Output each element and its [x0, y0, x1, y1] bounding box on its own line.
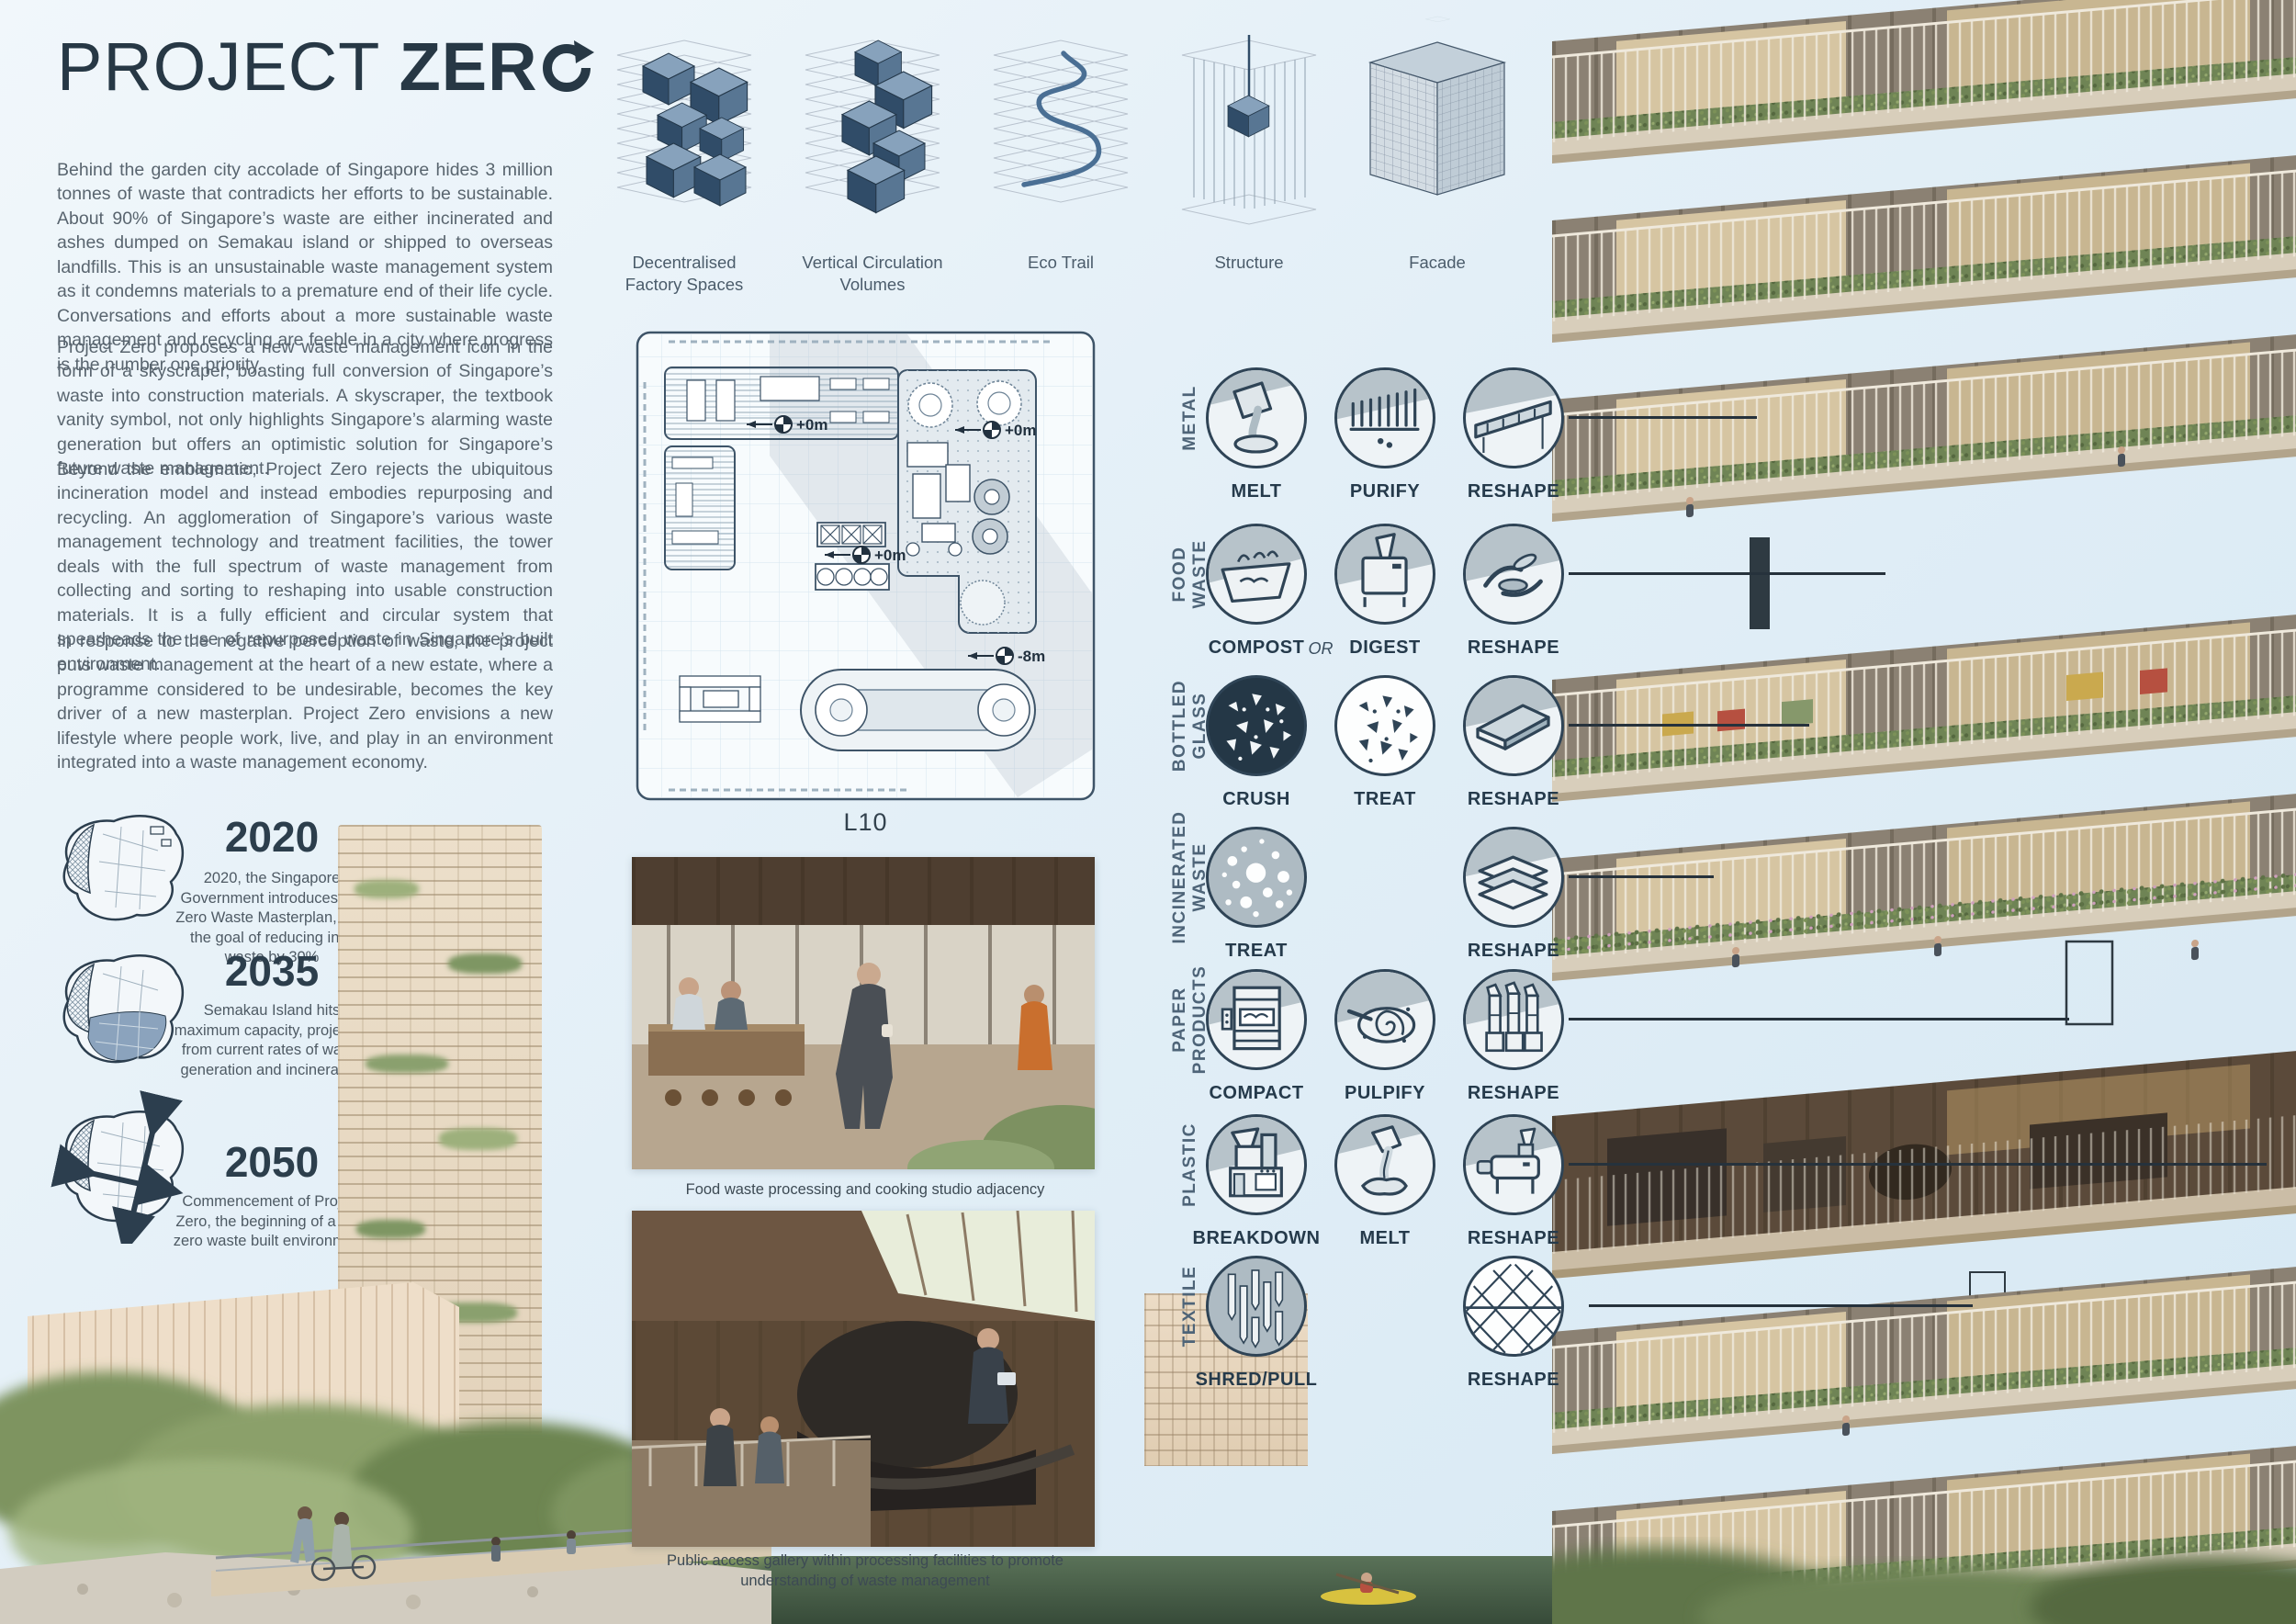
- diagram-label-1: Decentralised Factory Spaces: [606, 252, 762, 296]
- step-label: DIGEST: [1316, 637, 1454, 659]
- step-label: MELT: [1316, 1228, 1454, 1249]
- reshape-conveyor-icon: [1463, 367, 1564, 468]
- matrix-category-bottled-glass: BOTTLED GLASS: [1170, 680, 1210, 772]
- diagram-facade: [1359, 15, 1515, 246]
- step-label: PURIFY: [1316, 481, 1454, 502]
- step-label: MELT: [1187, 481, 1325, 502]
- diagram-structure: [1171, 15, 1327, 246]
- step-label: TREAT: [1316, 789, 1454, 810]
- matrix-category-food-waste: FOOD WASTE: [1170, 539, 1210, 608]
- photo1-caption: Food waste processing and cooking studio…: [617, 1179, 1113, 1200]
- recycle-arrow-o-icon: [541, 40, 594, 94]
- timeline-year-2020: 2020: [180, 812, 364, 862]
- step-label: COMPACT: [1187, 1083, 1325, 1104]
- treat-shards-icon: [1334, 675, 1435, 776]
- leader-line-textile: [1589, 1304, 1973, 1307]
- leader-line-plastic: [1569, 1163, 2267, 1166]
- leader-line-incinerated-waste: [1569, 875, 1714, 878]
- pulpify-vortex-icon: [1334, 969, 1435, 1070]
- svg-text:-8m: -8m: [1018, 648, 1045, 665]
- reshape-extruder-icon: [1463, 1114, 1564, 1215]
- purify-filter-icon: [1334, 367, 1435, 468]
- treat-porous-icon: [1206, 827, 1307, 928]
- leader-line-bottled-glass: [1569, 724, 1809, 727]
- diagram-label-4: Structure: [1171, 252, 1327, 274]
- leader-line-food-waste: [1569, 572, 1885, 575]
- diagram-label-5: Facade: [1359, 252, 1515, 274]
- diagram-label-2: Vertical Circulation Volumes: [794, 252, 951, 296]
- step-label: PULPIFY: [1316, 1083, 1454, 1104]
- diagram-label-3: Eco Trail: [983, 252, 1139, 274]
- reshape-tubes-icon: [1463, 969, 1564, 1070]
- matrix-row-textile: TEXTILE SHRED/PULL RESHAPE: [1139, 1256, 1580, 1449]
- step-label: RESHAPE: [1445, 1083, 1582, 1104]
- floor-plan-l10: +0m +0m +0m -8m: [632, 327, 1099, 805]
- step-label: RESHAPE: [1445, 481, 1582, 502]
- step-label: CRUSH: [1187, 789, 1325, 810]
- digest-machine-icon: [1334, 524, 1435, 625]
- matrix-category-paper-products: PAPER PRODUCTS: [1170, 965, 1210, 1075]
- shred-strips-icon: [1206, 1256, 1307, 1357]
- svg-text:+0m: +0m: [1005, 422, 1037, 439]
- reshape-boards-icon: [1463, 827, 1564, 928]
- presentation-board: PROJECT ZER Behind the garden city accol…: [0, 0, 2296, 1624]
- timeline-year-2050: 2050: [180, 1137, 364, 1187]
- title-bold: ZER: [400, 28, 538, 105]
- svg-text:+0m: +0m: [796, 416, 828, 434]
- step-label: BREAKDOWN: [1187, 1228, 1325, 1249]
- plan-level-label: L10: [632, 808, 1099, 837]
- timeline-year-2035: 2035: [180, 946, 364, 996]
- crush-shards-icon: [1206, 675, 1307, 776]
- diagram-vertical-circulation-volumes: [794, 15, 951, 246]
- matrix-category-textile: TEXTILE: [1180, 1266, 1200, 1348]
- photo2-caption: Public access gallery within processing …: [617, 1551, 1113, 1591]
- matrix-category-metal: METAL: [1180, 385, 1200, 451]
- step-label: SHRED/PULL: [1187, 1370, 1325, 1391]
- breakdown-shredder-icon: [1206, 1114, 1307, 1215]
- melt-goo-icon: [1334, 1114, 1435, 1215]
- step-label: RESHAPE: [1445, 1228, 1582, 1249]
- compost-tray-icon: [1206, 524, 1307, 625]
- diagram-eco-trail: [983, 15, 1139, 246]
- kayak-paddler: [1309, 1567, 1428, 1613]
- reshape-pane-icon: [1463, 675, 1564, 776]
- svg-text:+0m: +0m: [874, 547, 906, 564]
- reshape-hands-icon: [1463, 524, 1564, 625]
- step-label: RESHAPE: [1445, 637, 1582, 659]
- photo-processing-gallery: [632, 1211, 1095, 1547]
- building-cutaway-render: [1552, 0, 2296, 1624]
- step-label: TREAT: [1187, 941, 1325, 962]
- leader-line-paper-products: [1569, 1018, 2069, 1021]
- step-label: RESHAPE: [1445, 1370, 1582, 1391]
- matrix-category-incinerated-waste: INCINERATED WASTE: [1170, 811, 1210, 944]
- melt-pour-icon: [1206, 367, 1307, 468]
- compact-baler-icon: [1206, 969, 1307, 1070]
- intro-paragraph-4: In response to the negative perception o…: [57, 629, 553, 775]
- step-label: RESHAPE: [1445, 789, 1582, 810]
- diagram-decentralised-factory-spaces: [606, 15, 762, 246]
- page-title: PROJECT ZER: [57, 28, 594, 106]
- leader-line-metal: [1569, 416, 1757, 419]
- step-label: RESHAPE: [1445, 941, 1582, 962]
- reshape-lattice-icon: [1463, 1256, 1564, 1357]
- title-prefix: PROJECT: [57, 28, 379, 105]
- photo-cooking-studio: [632, 857, 1095, 1169]
- matrix-category-plastic: PLASTIC: [1180, 1122, 1200, 1207]
